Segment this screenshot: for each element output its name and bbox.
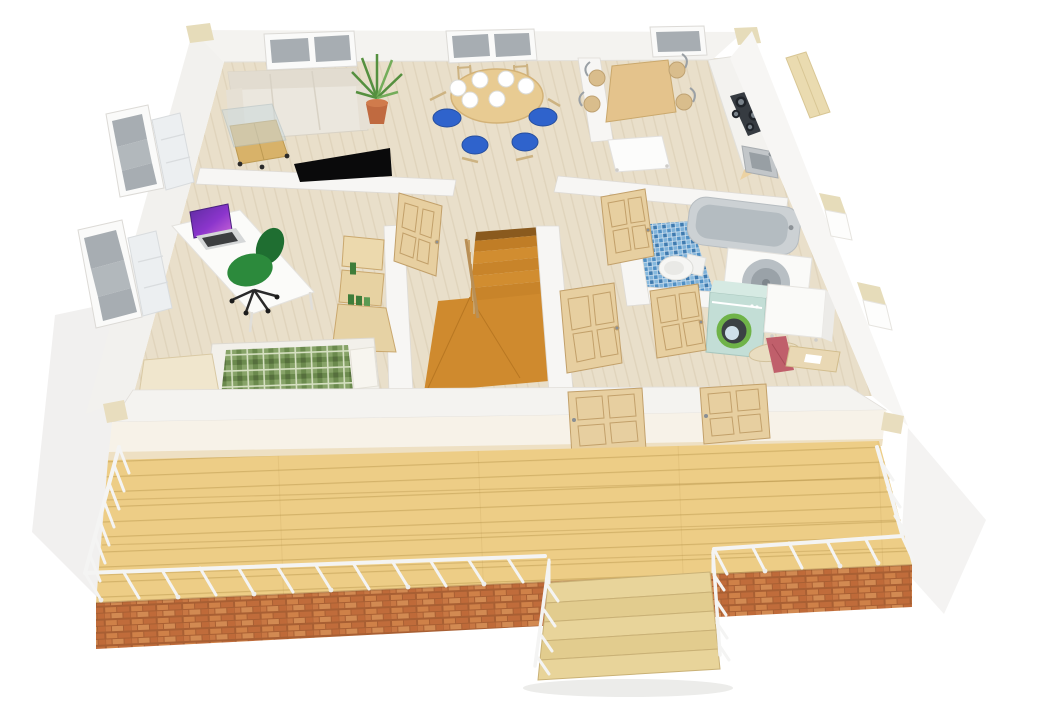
wall-vent-block [786, 52, 830, 118]
door-handle [646, 228, 650, 232]
kitchen-window [650, 26, 707, 57]
pot-rim [366, 99, 388, 107]
floor-plan-3d-svg [0, 0, 1044, 720]
window-pane [656, 31, 701, 52]
laundry [725, 326, 739, 340]
front-steps [538, 572, 720, 680]
corridor-door-open [560, 283, 622, 373]
white-side-table [608, 136, 670, 172]
dining-double-window [446, 29, 537, 63]
terrace-door [568, 388, 646, 456]
terrace-door [700, 384, 770, 444]
window-pane [452, 34, 490, 58]
terrace [85, 441, 913, 680]
plate [462, 92, 478, 108]
plate [518, 78, 534, 94]
caster [260, 165, 265, 170]
ground-shadow-right [900, 428, 986, 614]
plate [498, 71, 514, 87]
bedroom-door-open [394, 193, 442, 276]
utility-door-open [650, 284, 706, 358]
plate [472, 72, 488, 88]
door-handle [704, 414, 708, 418]
ground-shadow-steps [523, 679, 733, 697]
corner-cap-bottom-left [103, 400, 128, 423]
plaid-blanket [221, 345, 353, 396]
door-handle [615, 326, 619, 330]
window-pane [494, 33, 531, 57]
plate [489, 91, 505, 107]
caster [285, 154, 290, 159]
pillow [350, 347, 378, 389]
stair-landing [424, 291, 549, 392]
door-handle [699, 320, 703, 324]
plate [450, 80, 466, 96]
white-cabinet [764, 284, 836, 342]
kitchen-table [606, 60, 676, 122]
window-pane [270, 38, 310, 63]
toilet-seat [664, 261, 684, 275]
corner-cap-top-left [186, 23, 214, 43]
window-pane [314, 35, 351, 62]
bathroom-door-open [601, 189, 654, 265]
door-handle [435, 240, 439, 244]
floor-plan-render [0, 0, 1044, 720]
door-handle [572, 418, 576, 422]
caster [238, 162, 243, 167]
living-room-double-window [264, 31, 357, 70]
